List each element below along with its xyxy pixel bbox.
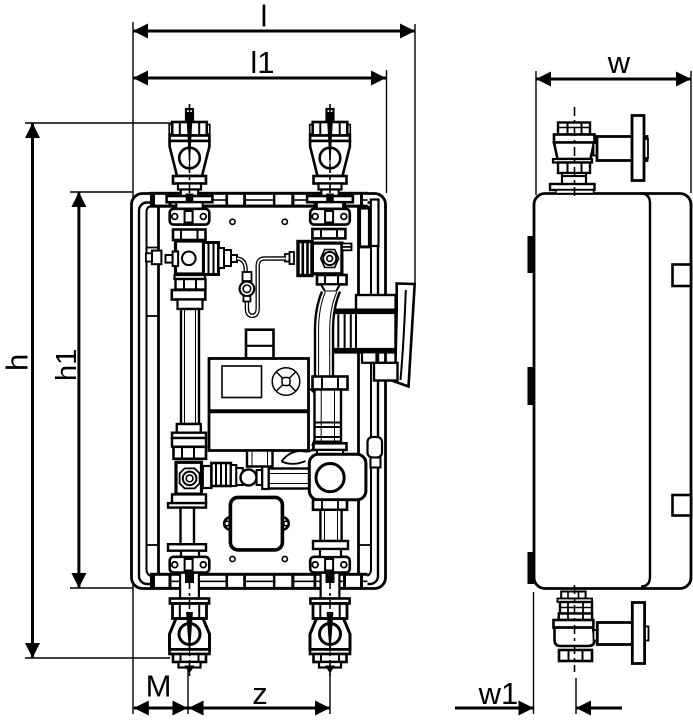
svg-text:h: h	[0, 354, 35, 371]
svg-text:l: l	[261, 0, 268, 34]
svg-text:z: z	[252, 676, 268, 711]
svg-text:h1: h1	[51, 349, 83, 381]
svg-text:w: w	[607, 45, 631, 80]
svg-text:M: M	[146, 669, 172, 704]
svg-text:l1: l1	[250, 45, 274, 80]
svg-text:w1: w1	[478, 676, 519, 711]
